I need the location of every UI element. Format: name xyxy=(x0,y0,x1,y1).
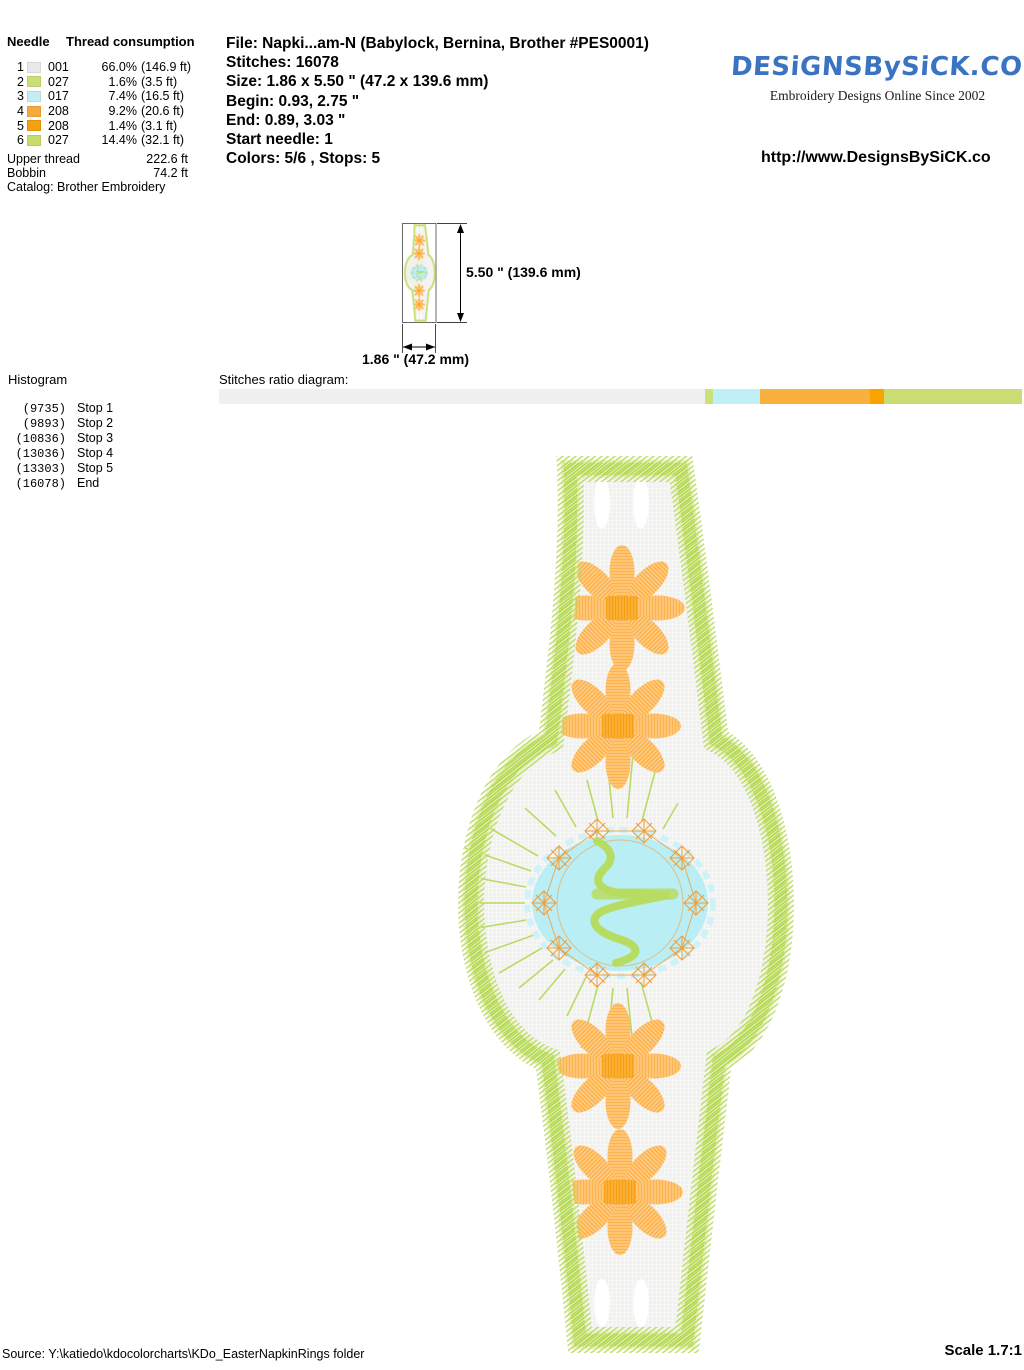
start-needle-line: Start needle: 1 xyxy=(226,130,649,149)
thread-percent: 1.4% xyxy=(81,119,137,133)
stop-stitch-count: (13036) xyxy=(8,447,66,461)
needle-number: 5 xyxy=(7,119,27,133)
print-preview-page: Needle Thread consumption 1 001 66.0% (1… xyxy=(0,0,1024,1370)
ratio-segment xyxy=(870,389,884,404)
bobbin-label: Bobbin xyxy=(7,166,107,180)
ratio-diagram-label: Stitches ratio diagram: xyxy=(219,372,348,387)
needle-number: 6 xyxy=(7,133,27,147)
brand-logo: DESiGNSBySiCK.COM xyxy=(730,52,1024,82)
stop-label: Stop 5 xyxy=(77,461,113,475)
thread-color-swatch xyxy=(27,120,41,131)
thread-percent: 66.0% xyxy=(81,60,137,74)
thread-length: (146.9 ft) xyxy=(137,60,215,74)
height-dimension xyxy=(437,224,467,323)
thread-consumption-column-header: Thread consumption xyxy=(66,34,195,49)
needle-number: 3 xyxy=(7,89,27,103)
thread-percent: 7.4% xyxy=(81,89,137,103)
ratio-segment xyxy=(219,389,705,404)
colors-stops-line: Colors: 5/6 , Stops: 5 xyxy=(226,149,649,168)
stop-stitch-count: (13303) xyxy=(8,462,66,476)
scale-indicator: Scale 1.7:1 xyxy=(944,1342,1022,1359)
ratio-segment xyxy=(705,389,713,404)
thread-code: 017 xyxy=(44,89,81,103)
thread-percent: 9.2% xyxy=(81,104,137,118)
thread-color-swatch xyxy=(27,91,41,102)
height-dimension-label: 5.50 " (139.6 mm) xyxy=(466,264,581,280)
stop-stitch-count: (9735) xyxy=(8,402,66,416)
thread-totals: Upper thread 222.6 ft Bobbin 74.2 ft Cat… xyxy=(7,152,188,194)
arrow-up-icon xyxy=(457,224,464,233)
thread-length: (16.5 ft) xyxy=(137,89,215,103)
histogram-entry: (9893) Stop 2 xyxy=(8,416,113,431)
needle-number: 2 xyxy=(7,75,27,89)
design-thumbnail xyxy=(404,225,435,320)
ratio-segment xyxy=(713,389,760,404)
stop-label: Stop 3 xyxy=(77,431,113,445)
thread-color-swatch xyxy=(27,76,41,87)
thread-percent: 14.4% xyxy=(81,133,137,147)
thread-code: 208 xyxy=(44,119,81,133)
thread-color-swatch xyxy=(27,106,41,117)
stitches-line: Stitches: 16078 xyxy=(226,53,649,72)
arrow-right-icon xyxy=(426,344,435,351)
ratio-segment xyxy=(884,389,1022,404)
thread-length: (3.5 ft) xyxy=(137,75,215,89)
end-line: End: 0.89, 3.03 " xyxy=(226,111,649,130)
needle-column-header: Needle xyxy=(7,34,50,49)
file-name-line: File: Napki...am-N (Babylock, Bernina, B… xyxy=(226,34,649,53)
histogram-entry: (13036) Stop 4 xyxy=(8,446,113,461)
bobbin-value: 74.2 ft xyxy=(107,166,188,180)
stop-label: Stop 2 xyxy=(77,416,113,430)
histogram-entry: (13303) Stop 5 xyxy=(8,461,113,476)
needle-table-rows: 1 001 66.0% (146.9 ft) 2 027 1.6% (3.5 f… xyxy=(7,60,215,148)
upper-thread-value: 222.6 ft xyxy=(107,152,188,166)
thread-code: 027 xyxy=(44,75,81,89)
source-path: Source: Y:\katiedo\kdocolorcharts\KDo_Ea… xyxy=(2,1347,364,1361)
thread-color-swatch xyxy=(27,62,41,73)
thread-code: 027 xyxy=(44,133,81,147)
thread-length: (3.1 ft) xyxy=(137,119,215,133)
thread-code: 208 xyxy=(44,104,81,118)
needle-number: 1 xyxy=(7,60,27,74)
stop-label: Stop 1 xyxy=(77,401,113,415)
histogram-entry: (10836) Stop 3 xyxy=(8,431,113,446)
thread-code: 001 xyxy=(44,60,81,74)
stop-stitch-count: (9893) xyxy=(8,417,66,431)
histogram-list: (9735) Stop 1 (9893) Stop 2 (10836) Stop… xyxy=(8,401,113,491)
needle-row: 4 208 9.2% (20.6 ft) xyxy=(7,104,215,119)
ratio-diagram-bar xyxy=(219,389,1022,404)
thread-color-swatch xyxy=(27,135,41,146)
histogram-entry: (16078) End xyxy=(8,476,113,491)
upper-thread-row: Upper thread 222.6 ft xyxy=(7,152,188,166)
begin-line: Begin: 0.93, 2.75 " xyxy=(226,92,649,111)
needle-row: 6 027 14.4% (32.1 ft) xyxy=(7,133,215,148)
needle-row: 1 001 66.0% (146.9 ft) xyxy=(7,60,215,75)
thread-length: (20.6 ft) xyxy=(137,104,215,118)
histogram-entry: (9735) Stop 1 xyxy=(8,401,113,416)
histogram-title: Histogram xyxy=(8,372,67,387)
stop-label: End xyxy=(77,476,113,490)
stop-stitch-count: (16078) xyxy=(8,477,66,491)
file-info: File: Napki...am-N (Babylock, Bernina, B… xyxy=(226,34,649,168)
needle-row: 3 017 7.4% (16.5 ft) xyxy=(7,89,215,104)
needle-row: 5 208 1.4% (3.1 ft) xyxy=(7,118,215,133)
width-dimension-label: 1.86 " (47.2 mm) xyxy=(362,351,469,367)
brand-url[interactable]: http://www.DesignsBySiCK.co xyxy=(761,149,991,167)
arrow-left-icon xyxy=(403,344,412,351)
design-preview xyxy=(430,445,810,1360)
stop-label: Stop 4 xyxy=(77,446,113,460)
arrow-down-icon xyxy=(457,313,464,322)
needle-number: 4 xyxy=(7,104,27,118)
needle-table-header: Needle Thread consumption xyxy=(7,34,50,49)
size-line: Size: 1.86 x 5.50 " (47.2 x 139.6 mm) xyxy=(226,72,649,91)
brand-tagline: Embroidery Designs Online Since 2002 xyxy=(731,88,1024,104)
catalog-line: Catalog: Brother Embroidery xyxy=(7,180,188,194)
stop-stitch-count: (10836) xyxy=(8,432,66,446)
thread-percent: 1.6% xyxy=(81,75,137,89)
thread-length: (32.1 ft) xyxy=(137,133,215,147)
needle-row: 2 027 1.6% (3.5 ft) xyxy=(7,75,215,90)
ratio-segment xyxy=(760,389,870,404)
upper-thread-label: Upper thread xyxy=(7,152,107,166)
bobbin-row: Bobbin 74.2 ft xyxy=(7,166,188,180)
